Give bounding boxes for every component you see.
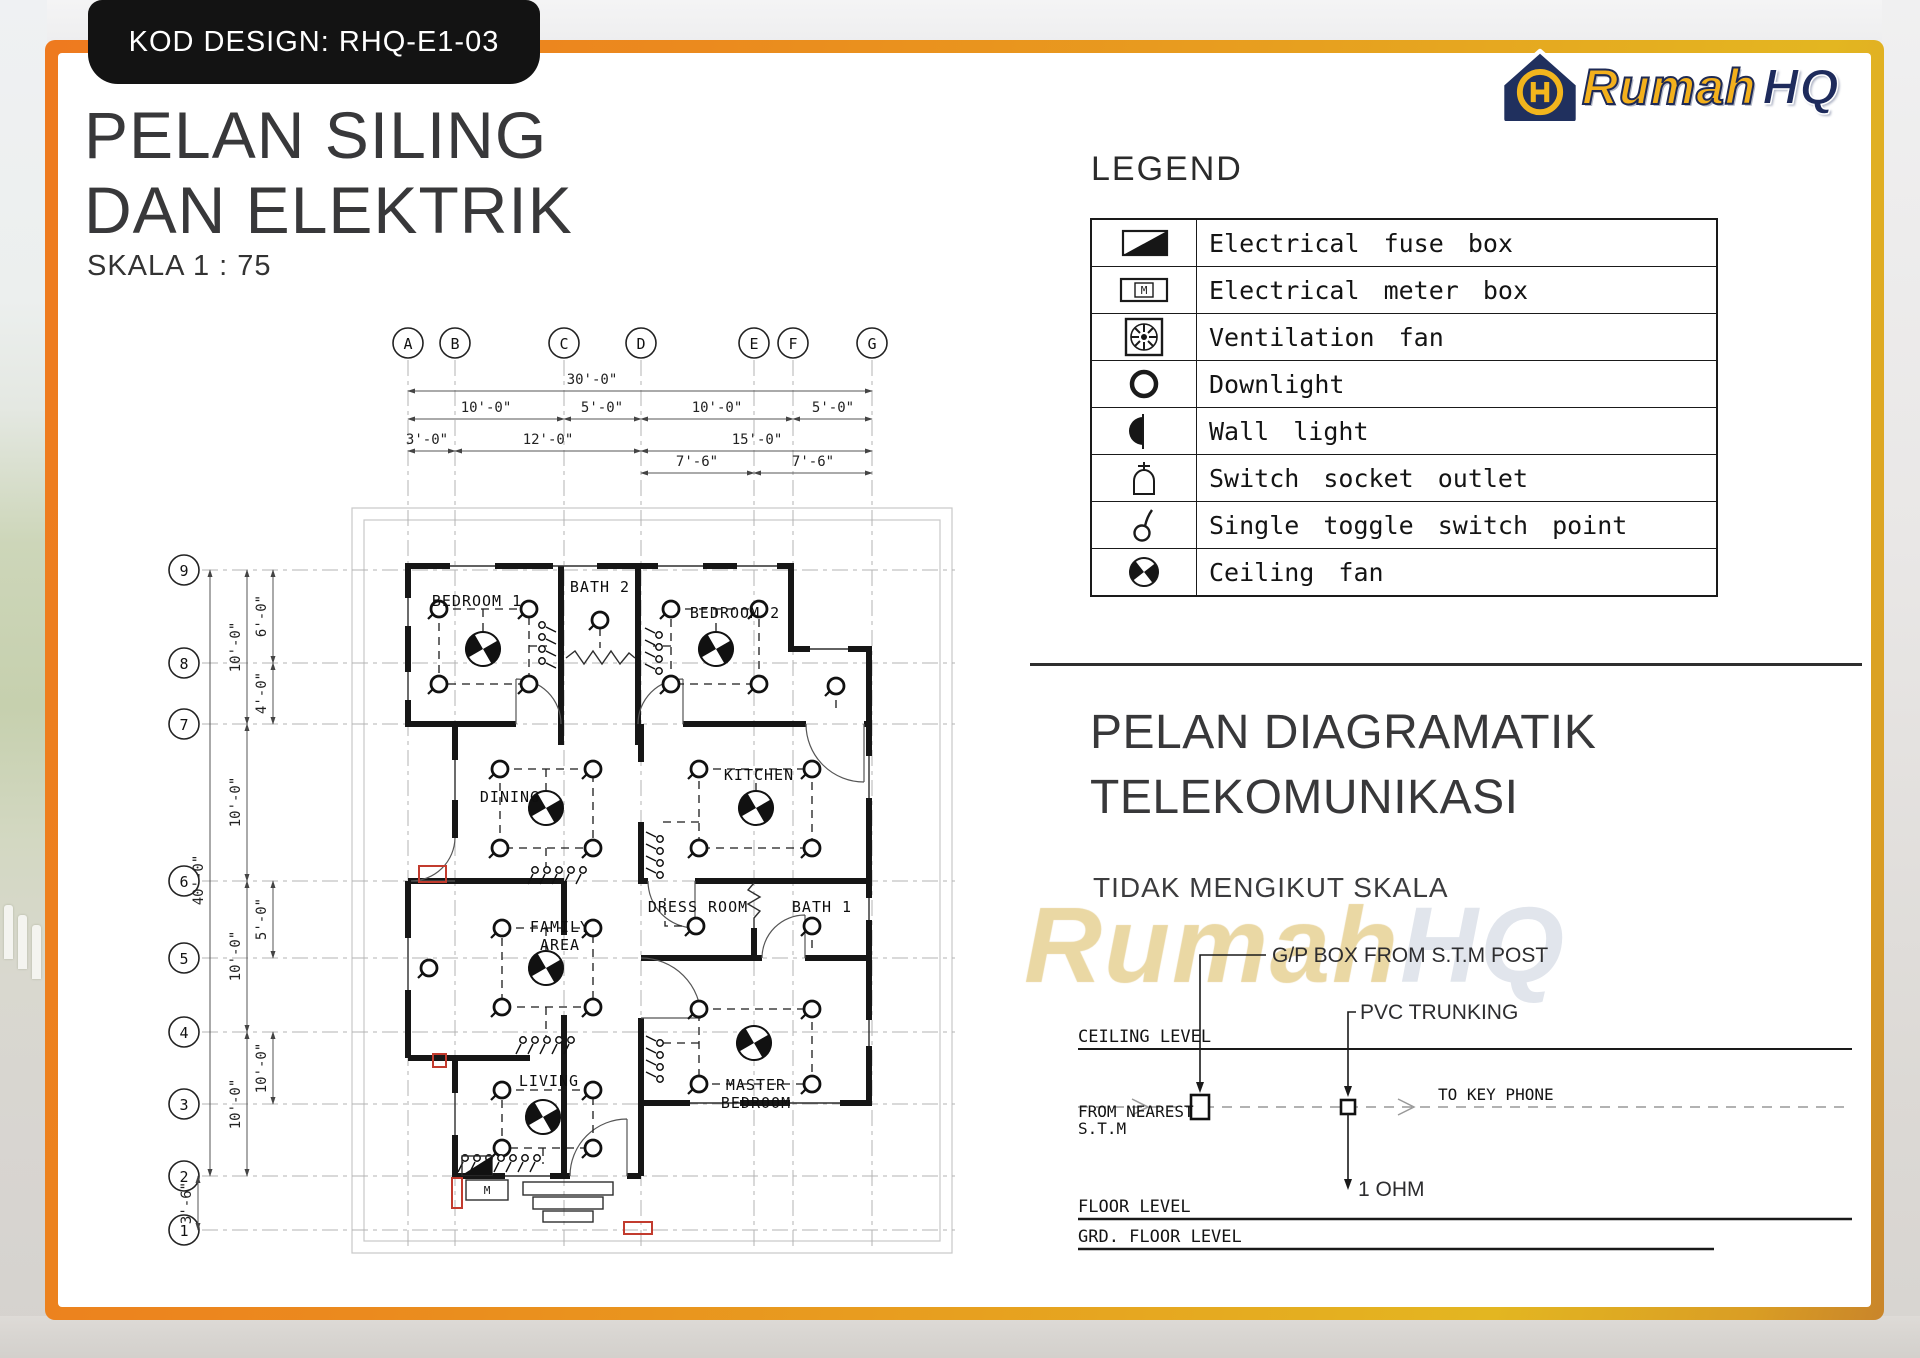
stm-label: S.T.M bbox=[1078, 1119, 1126, 1138]
svg-text:6'-0": 6'-0" bbox=[254, 595, 270, 637]
page-title-line2: DAN ELEKTRIK bbox=[84, 173, 573, 248]
gp-box-leader bbox=[1200, 955, 1266, 1088]
legend-label: Switch socket outlet bbox=[1197, 455, 1716, 501]
legend-label: Single toggle switch point bbox=[1197, 502, 1716, 548]
legend-row: Ceiling fan bbox=[1092, 548, 1716, 595]
svg-text:12'-0": 12'-0" bbox=[523, 432, 574, 448]
legend-table: Electrical fuse box M Electrical meter b… bbox=[1090, 218, 1718, 597]
room-label-family-2: AREA bbox=[540, 936, 580, 954]
gp-box-label: G/P BOX FROM S.T.M POST bbox=[1272, 944, 1548, 967]
svg-text:5'-0": 5'-0" bbox=[254, 898, 270, 940]
fence-picket bbox=[32, 925, 41, 979]
svg-text:40'-0": 40'-0" bbox=[191, 855, 207, 906]
svg-text:10'-0": 10'-0" bbox=[228, 1079, 244, 1130]
structural-grid bbox=[202, 360, 955, 1250]
legend-label: Downlight bbox=[1197, 361, 1716, 407]
svg-text:G: G bbox=[867, 335, 876, 353]
legend-title: LEGEND bbox=[1091, 150, 1243, 189]
room-label-bath1: BATH 1 bbox=[792, 898, 852, 916]
svg-text:3'-6": 3'-6" bbox=[179, 1182, 195, 1224]
floor-level-label: FLOOR LEVEL bbox=[1078, 1197, 1191, 1217]
svg-text:8: 8 bbox=[179, 655, 188, 673]
room-label-master-1: MASTER bbox=[726, 1076, 786, 1094]
svg-text:5: 5 bbox=[179, 950, 188, 968]
legend-label: Ceiling fan bbox=[1197, 549, 1716, 595]
background-pavement bbox=[0, 1316, 1920, 1358]
door-swings bbox=[411, 679, 864, 1176]
svg-text:5'-0": 5'-0" bbox=[812, 400, 854, 416]
electrical-fuse-box-icon bbox=[1092, 220, 1197, 266]
svg-text:C: C bbox=[559, 335, 568, 353]
single-toggle-switch-icon bbox=[1092, 502, 1197, 548]
dimensions-top: 30'-0" 10'-0" 5'-0" 10'-0" 5'-0" 3'-0" 1… bbox=[406, 372, 872, 473]
design-code-label: KOD DESIGN: RHQ-E1-03 bbox=[129, 26, 500, 59]
legend-row: Downlight bbox=[1092, 360, 1716, 407]
rumahhq-house-icon bbox=[1498, 46, 1582, 128]
room-label-living: LIVING bbox=[519, 1072, 579, 1090]
trunking-box bbox=[1341, 1100, 1355, 1114]
grid-bubbles-top: A B C D E F G bbox=[393, 328, 887, 358]
electrical-meter-box-icon: M bbox=[1092, 267, 1197, 313]
entry-steps bbox=[523, 1182, 613, 1222]
room-label-dress: DRESS ROOM bbox=[648, 898, 748, 916]
room-label-bath2: BATH 2 bbox=[570, 578, 630, 596]
page-title-line1: PELAN SILING bbox=[84, 98, 573, 173]
gp-box bbox=[1191, 1095, 1209, 1119]
svg-text:4: 4 bbox=[179, 1024, 188, 1042]
svg-text:30'-0": 30'-0" bbox=[567, 372, 618, 388]
svg-text:F: F bbox=[788, 335, 797, 353]
logo-rumah-text: Rumah bbox=[1582, 58, 1756, 116]
pvc-trunking-label: PVC TRUNKING bbox=[1360, 1001, 1518, 1024]
to-key-phone-label: TO KEY PHONE bbox=[1438, 1085, 1554, 1104]
ohm-label: 1 OHM bbox=[1358, 1178, 1425, 1201]
room-label-bedroom1: BEDROOM 1 bbox=[432, 592, 522, 610]
telecom-diagram: CEILING LEVEL FROM NEAREST S.T.M TO KEY … bbox=[1020, 930, 1870, 1270]
svg-text:M: M bbox=[484, 1184, 491, 1197]
svg-text:A: A bbox=[403, 335, 412, 353]
telecom-title: PELAN DIAGRAMATIK TELEKOMUNIKASI bbox=[1090, 700, 1596, 831]
svg-text:4'-0": 4'-0" bbox=[254, 672, 270, 714]
legend-row: Single toggle switch point bbox=[1092, 501, 1716, 548]
design-code-badge: KOD DESIGN: RHQ-E1-03 bbox=[88, 0, 540, 84]
ceiling-fan-icon bbox=[1092, 549, 1197, 595]
legend-row: Ventilation fan bbox=[1092, 313, 1716, 360]
svg-text:M: M bbox=[1141, 284, 1148, 297]
sheet: KOD DESIGN: RHQ-E1-03 PELAN SILING DAN E… bbox=[0, 0, 1920, 1358]
logo-hq-text: HQ bbox=[1762, 58, 1839, 116]
grd-floor-level-label: GRD. FLOOR LEVEL bbox=[1078, 1227, 1242, 1247]
svg-text:10'-0": 10'-0" bbox=[228, 931, 244, 982]
rumahhq-logo: Rumah HQ bbox=[1498, 44, 1839, 130]
bath2-shower-screen bbox=[566, 651, 635, 664]
background-left-garden bbox=[0, 0, 47, 1358]
legend-row: M Electrical meter box bbox=[1092, 266, 1716, 313]
legend-label: Electrical fuse box bbox=[1197, 220, 1716, 266]
legend-label: Wall light bbox=[1197, 408, 1716, 454]
room-label-dining: DINING bbox=[480, 788, 540, 806]
fence-picket bbox=[18, 915, 27, 969]
telecom-title-line1: PELAN DIAGRAMATIK bbox=[1090, 700, 1596, 765]
svg-text:3: 3 bbox=[179, 1096, 188, 1114]
svg-text:15'-0": 15'-0" bbox=[732, 432, 783, 448]
ventilation-fan-icon bbox=[1092, 314, 1197, 360]
fence-picket bbox=[4, 905, 13, 959]
legend-label: Electrical meter box bbox=[1197, 267, 1716, 313]
svg-text:7'-6": 7'-6" bbox=[676, 454, 718, 470]
legend-row: Wall light bbox=[1092, 407, 1716, 454]
room-label-master-2: BEDROOM bbox=[721, 1094, 791, 1112]
downlight-icon bbox=[1092, 361, 1197, 407]
svg-text:10'-0": 10'-0" bbox=[461, 400, 512, 416]
page-title: PELAN SILING DAN ELEKTRIK bbox=[84, 98, 573, 248]
electrical-meter-box: M bbox=[466, 1180, 508, 1200]
svg-text:E: E bbox=[749, 335, 758, 353]
svg-text:7: 7 bbox=[179, 716, 188, 734]
telecom-title-line2: TELEKOMUNIKASI bbox=[1090, 765, 1596, 830]
background-right bbox=[1882, 0, 1920, 1358]
room-label-bedroom2: BEDROOM 2 bbox=[690, 604, 780, 622]
svg-text:9: 9 bbox=[179, 562, 188, 580]
room-label-family-1: FAMILY bbox=[530, 918, 590, 936]
svg-text:10'-0": 10'-0" bbox=[692, 400, 743, 416]
svg-text:D: D bbox=[636, 335, 645, 353]
svg-text:6: 6 bbox=[179, 873, 188, 891]
svg-text:10'-0": 10'-0" bbox=[228, 777, 244, 828]
svg-text:B: B bbox=[450, 335, 459, 353]
wall-light-icon bbox=[1092, 408, 1197, 454]
legend-row: Switch socket outlet bbox=[1092, 454, 1716, 501]
room-label-kitchen: KITCHEN bbox=[724, 766, 794, 784]
pvc-leader bbox=[1348, 1012, 1356, 1092]
svg-text:5'-0": 5'-0" bbox=[581, 400, 623, 416]
svg-text:3'-0": 3'-0" bbox=[406, 432, 448, 448]
svg-text:10'-0": 10'-0" bbox=[254, 1043, 270, 1094]
floor-plan: A B C D E F G 9 8 7 6 5 4 3 2 1 30'-0" bbox=[110, 240, 990, 1275]
legend-row: Electrical fuse box bbox=[1092, 220, 1716, 266]
switch-socket-outlet-icon bbox=[1092, 455, 1197, 501]
svg-text:10'-0": 10'-0" bbox=[228, 622, 244, 673]
telecom-subtitle: TIDAK MENGIKUT SKALA bbox=[1093, 872, 1449, 904]
svg-text:7'-6": 7'-6" bbox=[792, 454, 834, 470]
section-divider bbox=[1030, 663, 1862, 666]
legend-label: Ventilation fan bbox=[1197, 314, 1716, 360]
ceiling-level-label: CEILING LEVEL bbox=[1078, 1027, 1211, 1047]
